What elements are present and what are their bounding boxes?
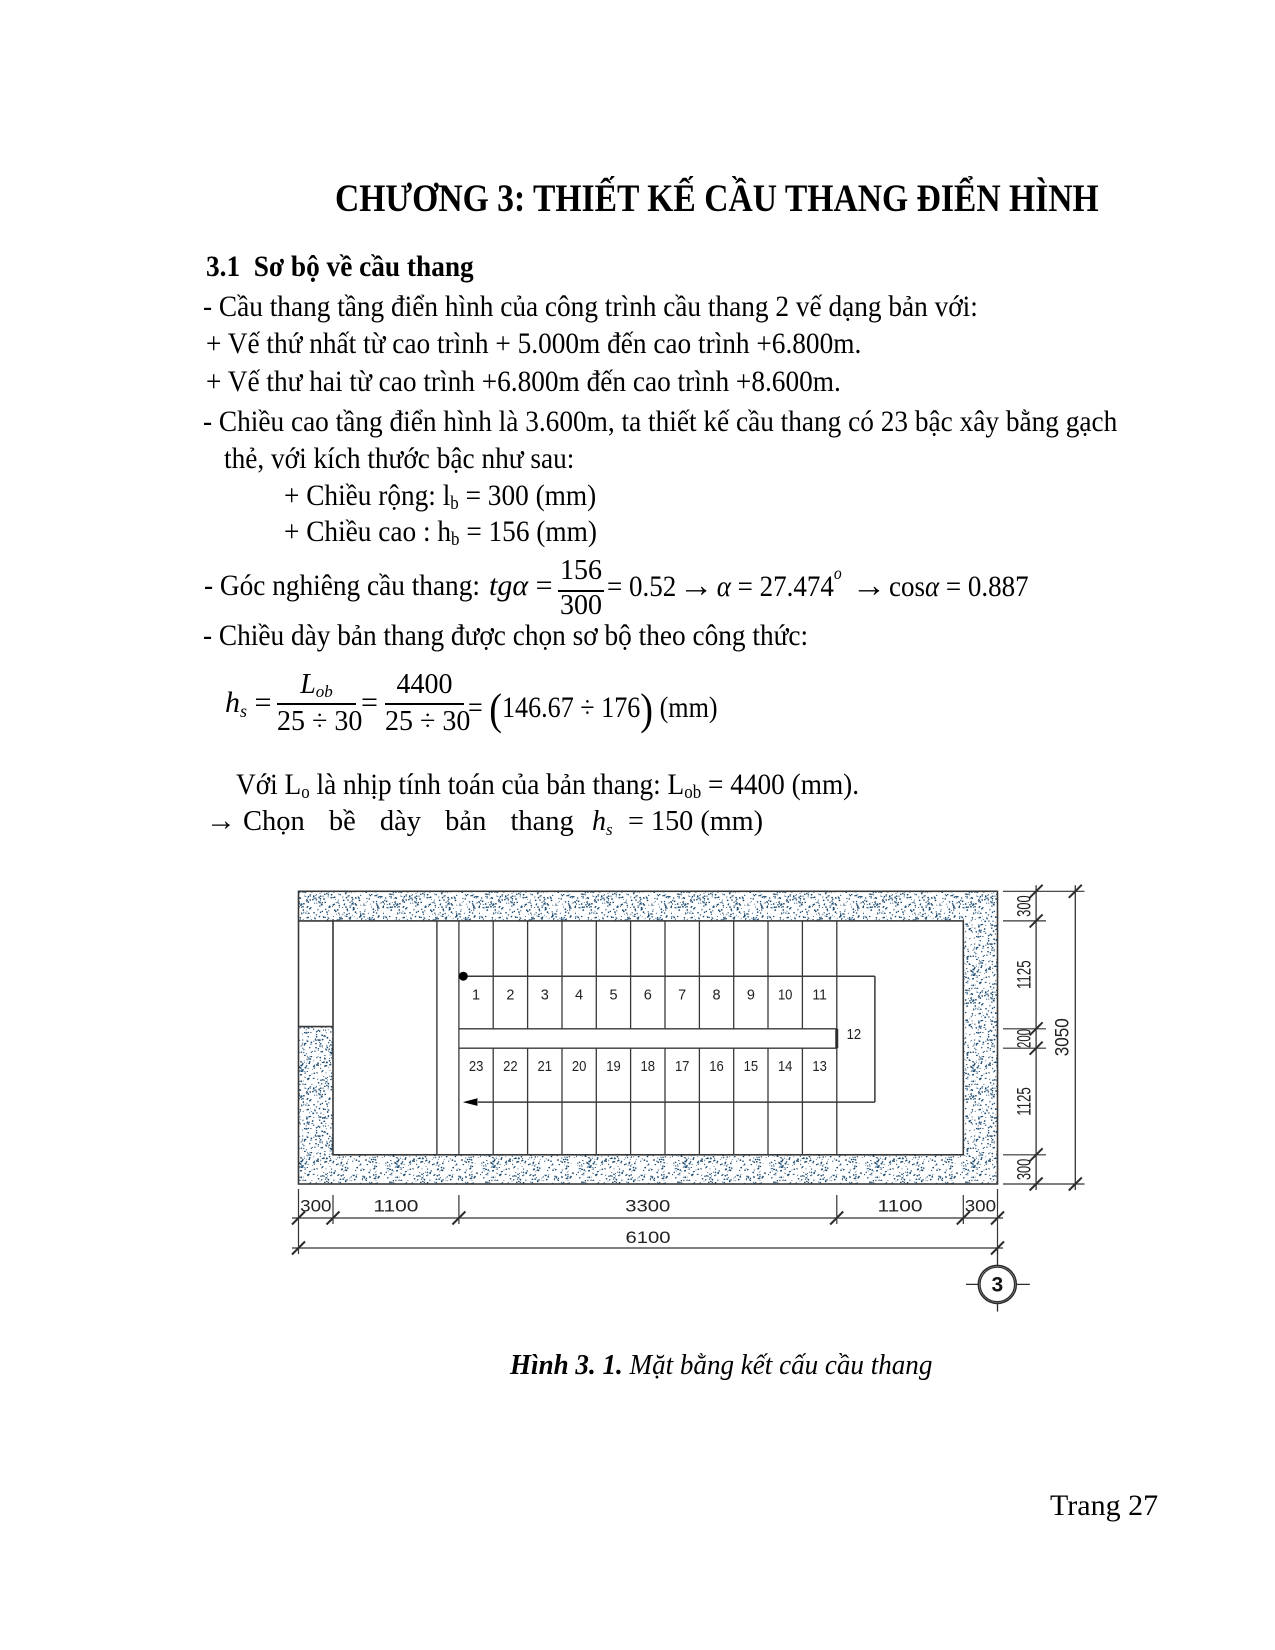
svg-text:5: 5 [609,988,617,1004]
svg-text:22: 22 [503,1059,518,1075]
svg-text:14: 14 [778,1059,793,1075]
svg-text:3: 3 [541,988,549,1004]
svg-text:200: 200 [1015,1029,1036,1048]
svg-text:23: 23 [469,1059,484,1075]
svg-text:21: 21 [538,1059,553,1075]
svg-text:1: 1 [472,988,480,1004]
svg-text:300: 300 [1015,1159,1036,1181]
svg-text:3300: 3300 [625,1197,670,1216]
svg-text:2: 2 [506,988,514,1004]
svg-text:7: 7 [678,988,686,1004]
svg-text:11: 11 [812,988,827,1004]
svg-text:19: 19 [606,1059,621,1075]
svg-text:300: 300 [1015,895,1036,917]
svg-text:3: 3 [991,1274,1003,1297]
svg-text:15: 15 [744,1059,759,1075]
svg-text:1125: 1125 [1015,960,1036,989]
svg-text:9: 9 [747,988,755,1004]
svg-text:300: 300 [300,1197,331,1216]
svg-text:20: 20 [572,1059,587,1075]
svg-text:1125: 1125 [1015,1087,1036,1116]
svg-text:12: 12 [847,1027,862,1043]
svg-text:10: 10 [778,988,793,1004]
svg-text:8: 8 [712,988,720,1004]
svg-text:4: 4 [575,988,583,1004]
svg-text:1100: 1100 [373,1197,418,1216]
svg-text:6: 6 [644,988,652,1004]
svg-text:6100: 6100 [626,1228,671,1247]
svg-text:18: 18 [641,1059,656,1075]
svg-text:13: 13 [812,1059,827,1075]
svg-text:17: 17 [675,1059,690,1075]
svg-text:1100: 1100 [878,1197,923,1216]
svg-text:300: 300 [965,1197,996,1216]
svg-text:3050: 3050 [1053,1018,1074,1056]
svg-text:16: 16 [709,1059,724,1075]
